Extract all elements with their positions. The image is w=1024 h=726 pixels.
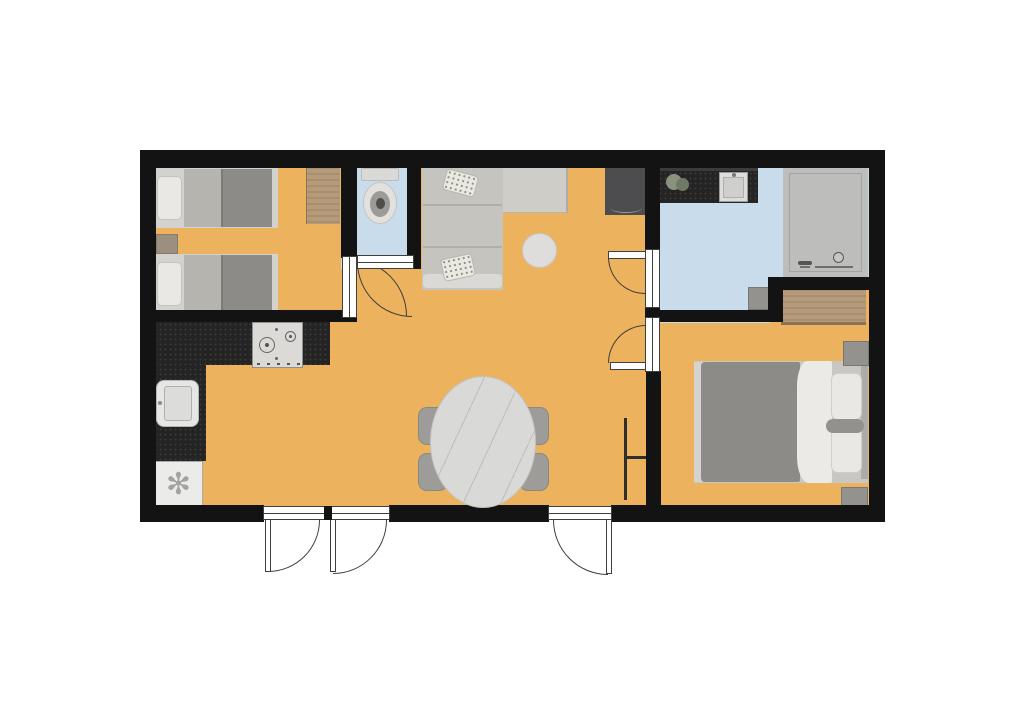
kitchen-sink-basin	[164, 386, 192, 421]
bathroom-door-leaf	[608, 251, 646, 259]
radiator-wall-tick	[627, 456, 647, 459]
master-nightstand-top	[843, 341, 869, 366]
kitchen-faucet	[158, 401, 162, 405]
radiator	[624, 418, 627, 500]
wall-living-right-upper	[645, 165, 660, 250]
bed-pillow-top	[831, 373, 862, 420]
bed2-pillow	[157, 262, 182, 306]
wall-outer-bottom-left	[140, 505, 264, 522]
bed-pillow-bottom	[831, 426, 862, 473]
bed-bolster-pillow	[826, 419, 864, 433]
gas-hob	[252, 322, 303, 368]
bed1-pillow	[157, 176, 182, 220]
bed1-mattress	[184, 169, 222, 227]
shower-pan	[789, 173, 862, 272]
hob-burner-right-dot	[289, 335, 292, 338]
bathroom-plant	[666, 172, 690, 195]
entry-single-door	[548, 506, 612, 520]
wall-outer-left	[140, 150, 156, 522]
entry-door-leaf-right	[330, 519, 336, 572]
wall-bathroom-bottom-left	[657, 310, 770, 322]
washbasin-inner	[723, 177, 744, 198]
toilet-bowl	[363, 182, 397, 224]
wall-outer-top	[140, 150, 885, 168]
wall-outer-right	[869, 150, 885, 522]
shower-handle-base	[800, 266, 810, 268]
wall-wc-right	[407, 165, 421, 269]
master-bedroom-door	[645, 317, 660, 372]
dining-table	[430, 376, 536, 508]
bathroom-cabinet	[748, 287, 770, 310]
single-bed-2	[153, 254, 278, 313]
toilet-drain	[376, 198, 385, 209]
bed-blanket	[701, 362, 800, 482]
tv-cabinet-curve	[610, 203, 642, 213]
wall-outer-bottom-right	[611, 505, 885, 522]
wall-twin-bedroom-right	[341, 165, 357, 258]
tv-cabinet	[605, 167, 647, 215]
hob-dot-1	[275, 328, 278, 331]
wall-outer-bottom-mid	[389, 505, 549, 522]
shower-head-icon	[833, 252, 844, 263]
twin-nightstand	[156, 234, 178, 254]
wc-door	[357, 255, 414, 269]
twin-bedroom-door	[342, 256, 357, 318]
sofa-seam-1	[423, 204, 502, 206]
kitchen-sink	[156, 380, 199, 427]
entry-door-swing-right	[333, 520, 387, 574]
wardrobe	[306, 167, 340, 224]
entry-door-leaf-left	[265, 519, 271, 572]
dresser	[781, 289, 866, 325]
hob-knob-row	[257, 363, 300, 365]
entry-door-swing-left	[268, 520, 320, 572]
entry-single-door-swing	[553, 520, 608, 575]
shower-rail-icon	[815, 266, 853, 268]
sofa-chaise-section	[503, 167, 568, 213]
bed2-blanket	[221, 255, 272, 312]
master-bedroom-door-leaf	[610, 362, 647, 370]
bed2-mattress	[184, 255, 222, 312]
wall-bathroom-bottom-right	[770, 277, 873, 290]
entry-double-door-post	[324, 506, 332, 520]
sofa-seam-2	[423, 246, 502, 248]
bathroom-door	[645, 249, 660, 308]
refrigerator: ✻	[154, 461, 203, 508]
hob-burner-left-dot	[265, 343, 269, 347]
refrigerator-symbol: ✻	[166, 470, 191, 500]
floor-plan: ✻	[0, 0, 1024, 726]
plant-leaf-2	[676, 178, 689, 191]
wall-kitchen-top	[140, 310, 357, 322]
toilet-tank	[361, 168, 399, 181]
single-bed-1	[153, 168, 278, 228]
coffee-table	[522, 233, 557, 268]
washbasin-faucet	[732, 173, 736, 177]
double-bed	[694, 361, 868, 483]
shower-handle-icon	[798, 261, 812, 265]
bed1-blanket	[221, 169, 272, 227]
bathroom-washbasin	[719, 172, 748, 202]
shower	[783, 168, 868, 277]
hob-dot-2	[275, 357, 278, 360]
wall-living-right-lower	[646, 371, 661, 505]
entry-single-door-leaf	[606, 519, 612, 574]
